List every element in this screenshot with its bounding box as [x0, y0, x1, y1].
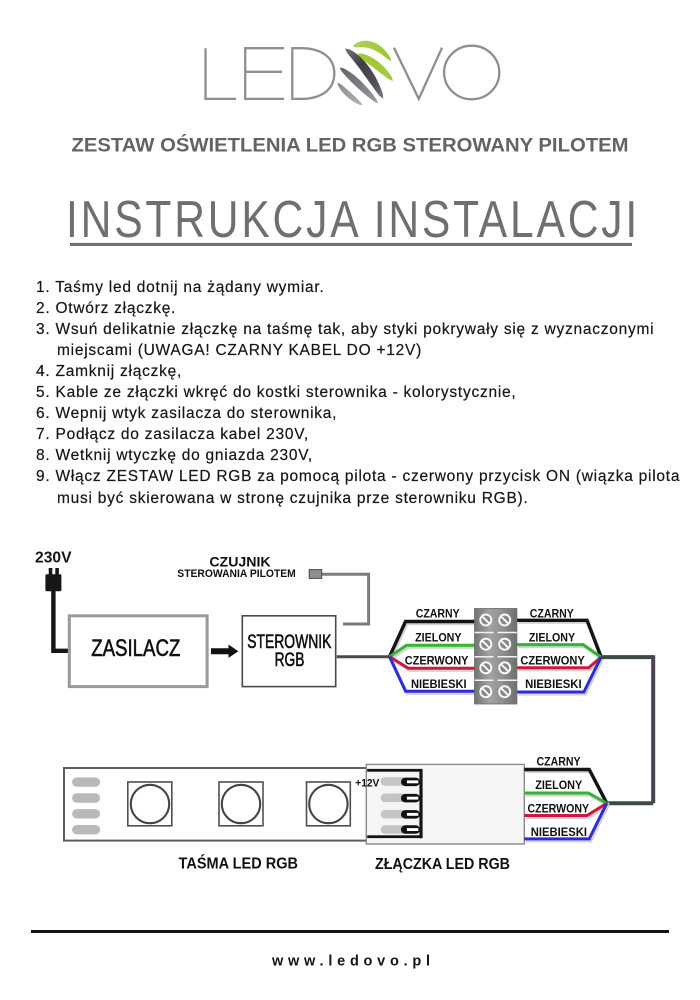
svg-text:TAŚMA LED RGB: TAŚMA LED RGB [179, 854, 299, 872]
svg-text:+12V: +12V [355, 778, 380, 790]
svg-text:ZIELONY: ZIELONY [415, 631, 462, 645]
svg-text:www.ledovo.pl: www.ledovo.pl [271, 954, 430, 970]
svg-text:ZIELONY: ZIELONY [535, 778, 582, 792]
svg-text:CZUJNIK: CZUJNIK [209, 553, 270, 569]
svg-text:ZESTAW OŚWIETLENIA LED RGB STE: ZESTAW OŚWIETLENIA LED RGB STEROWANY PIL… [72, 132, 629, 156]
svg-text:CZARNY: CZARNY [537, 755, 581, 769]
svg-text:STEROWANIA PILOTEM: STEROWANIA PILOTEM [177, 568, 295, 580]
svg-text:ZASILACZ: ZASILACZ [91, 635, 180, 662]
svg-text:NIEBIESKI: NIEBIESKI [525, 677, 582, 691]
svg-text:230V: 230V [35, 550, 72, 567]
svg-text:NIEBIESKI: NIEBIESKI [531, 825, 587, 839]
svg-text:NIEBIESKI: NIEBIESKI [411, 677, 467, 691]
svg-text:CZARNY: CZARNY [530, 607, 574, 621]
svg-text:CZERWONY: CZERWONY [405, 654, 469, 668]
svg-text:CZERWONY: CZERWONY [528, 801, 590, 815]
svg-text:CZARNY: CZARNY [416, 607, 460, 621]
svg-text:INSTRUKCJA INSTALACJI: INSTRUKCJA INSTALACJI [66, 190, 640, 248]
svg-text:ZIELONY: ZIELONY [529, 631, 575, 645]
svg-text:ZŁĄCZKA LED RGB: ZŁĄCZKA LED RGB [375, 856, 510, 873]
svg-text:CZERWONY: CZERWONY [520, 654, 584, 668]
svg-text:RGB: RGB [275, 650, 305, 671]
